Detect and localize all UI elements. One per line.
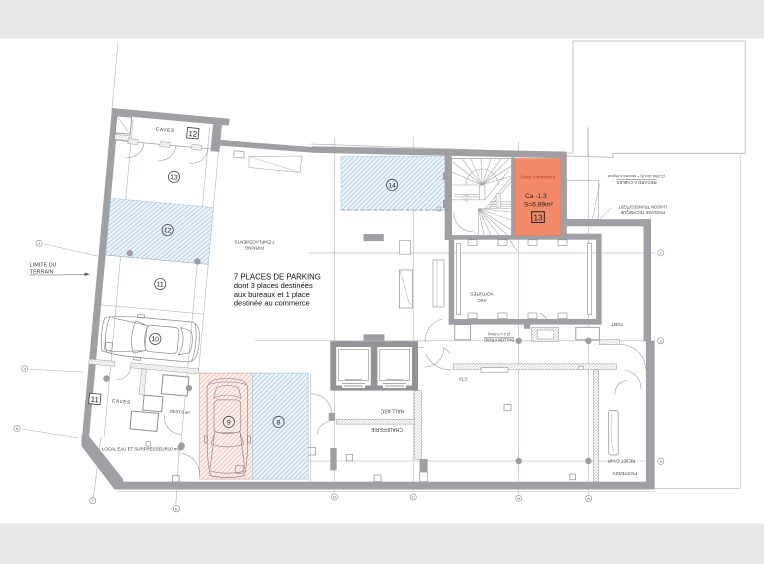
svg-text:12: 12 bbox=[188, 129, 197, 139]
svg-text:TERRAIN: TERRAIN bbox=[30, 270, 54, 276]
svg-text:13: 13 bbox=[170, 174, 178, 182]
svg-text:D: D bbox=[333, 494, 336, 499]
svg-text:REJET D'AIR: REJET D'AIR bbox=[607, 458, 635, 463]
svg-text:8: 8 bbox=[277, 419, 281, 426]
svg-text:Ca -1.3: Ca -1.3 bbox=[525, 193, 547, 200]
svg-text:HALL ASC: HALL ASC bbox=[380, 407, 404, 413]
svg-text:14: 14 bbox=[388, 182, 396, 189]
svg-text:S=6.89m²: S=6.89m² bbox=[524, 202, 554, 209]
svg-text:LIAISON TRANSFO/TGBT: LIAISON TRANSFO/TGBT bbox=[618, 205, 667, 210]
svg-text:LOCAL EAU ET SURPRESSEUR10 m²: LOCAL EAU ET SURPRESSEUR10 m² bbox=[102, 447, 180, 452]
svg-text:9: 9 bbox=[227, 419, 231, 426]
svg-text:PASSAGE TECHNIQUE: PASSAGE TECHNIQUE bbox=[620, 210, 665, 215]
svg-text:LIMITE DU: LIMITE DU bbox=[30, 263, 57, 269]
svg-text:10: 10 bbox=[151, 336, 159, 344]
svg-text:BALLON FROID: BALLON FROID bbox=[484, 338, 514, 343]
svg-text:TGBT: TGBT bbox=[611, 322, 623, 327]
svg-text:(2.1 x 0.95m): (2.1 x 0.95m) bbox=[487, 332, 510, 336]
svg-text:C: C bbox=[412, 494, 415, 499]
svg-text:Cave commerce: Cave commerce bbox=[521, 174, 556, 180]
svg-text:7 PLACES DE PARKING: 7 PLACES DE PARKING bbox=[234, 272, 321, 281]
svg-text:dont 3 places destinées: dont 3 places destinées bbox=[234, 281, 313, 290]
svg-text:13: 13 bbox=[533, 213, 543, 222]
svg-text:11: 11 bbox=[90, 395, 99, 405]
svg-text:7 EMPLACEMENTS: 7 EMPLACEMENTS bbox=[234, 240, 274, 245]
svg-text:(2.25x1.4x1.8) + raccord à l'é: (2.25x1.4x1.8) + raccord à l'égout bbox=[607, 174, 664, 178]
svg-text:CTA: CTA bbox=[458, 377, 468, 382]
svg-text:destinée au commerce: destinée au commerce bbox=[234, 299, 310, 308]
svg-text:ASC: ASC bbox=[477, 298, 487, 303]
svg-text:E: E bbox=[175, 506, 178, 511]
svg-text:12: 12 bbox=[164, 227, 172, 235]
svg-text:B: B bbox=[517, 496, 520, 501]
svg-text:11: 11 bbox=[156, 281, 164, 289]
svg-text:PARKING: PARKING bbox=[244, 246, 264, 251]
svg-text:REGARD A CABLES: REGARD A CABLES bbox=[616, 180, 656, 185]
svg-text:CHAUFFERIE: CHAUFFERIE bbox=[370, 426, 403, 432]
svg-text:A: A bbox=[587, 496, 590, 501]
svg-text:VOITURES: VOITURES bbox=[470, 292, 493, 297]
svg-text:POSTE/DIV: POSTE/DIV bbox=[612, 471, 637, 476]
